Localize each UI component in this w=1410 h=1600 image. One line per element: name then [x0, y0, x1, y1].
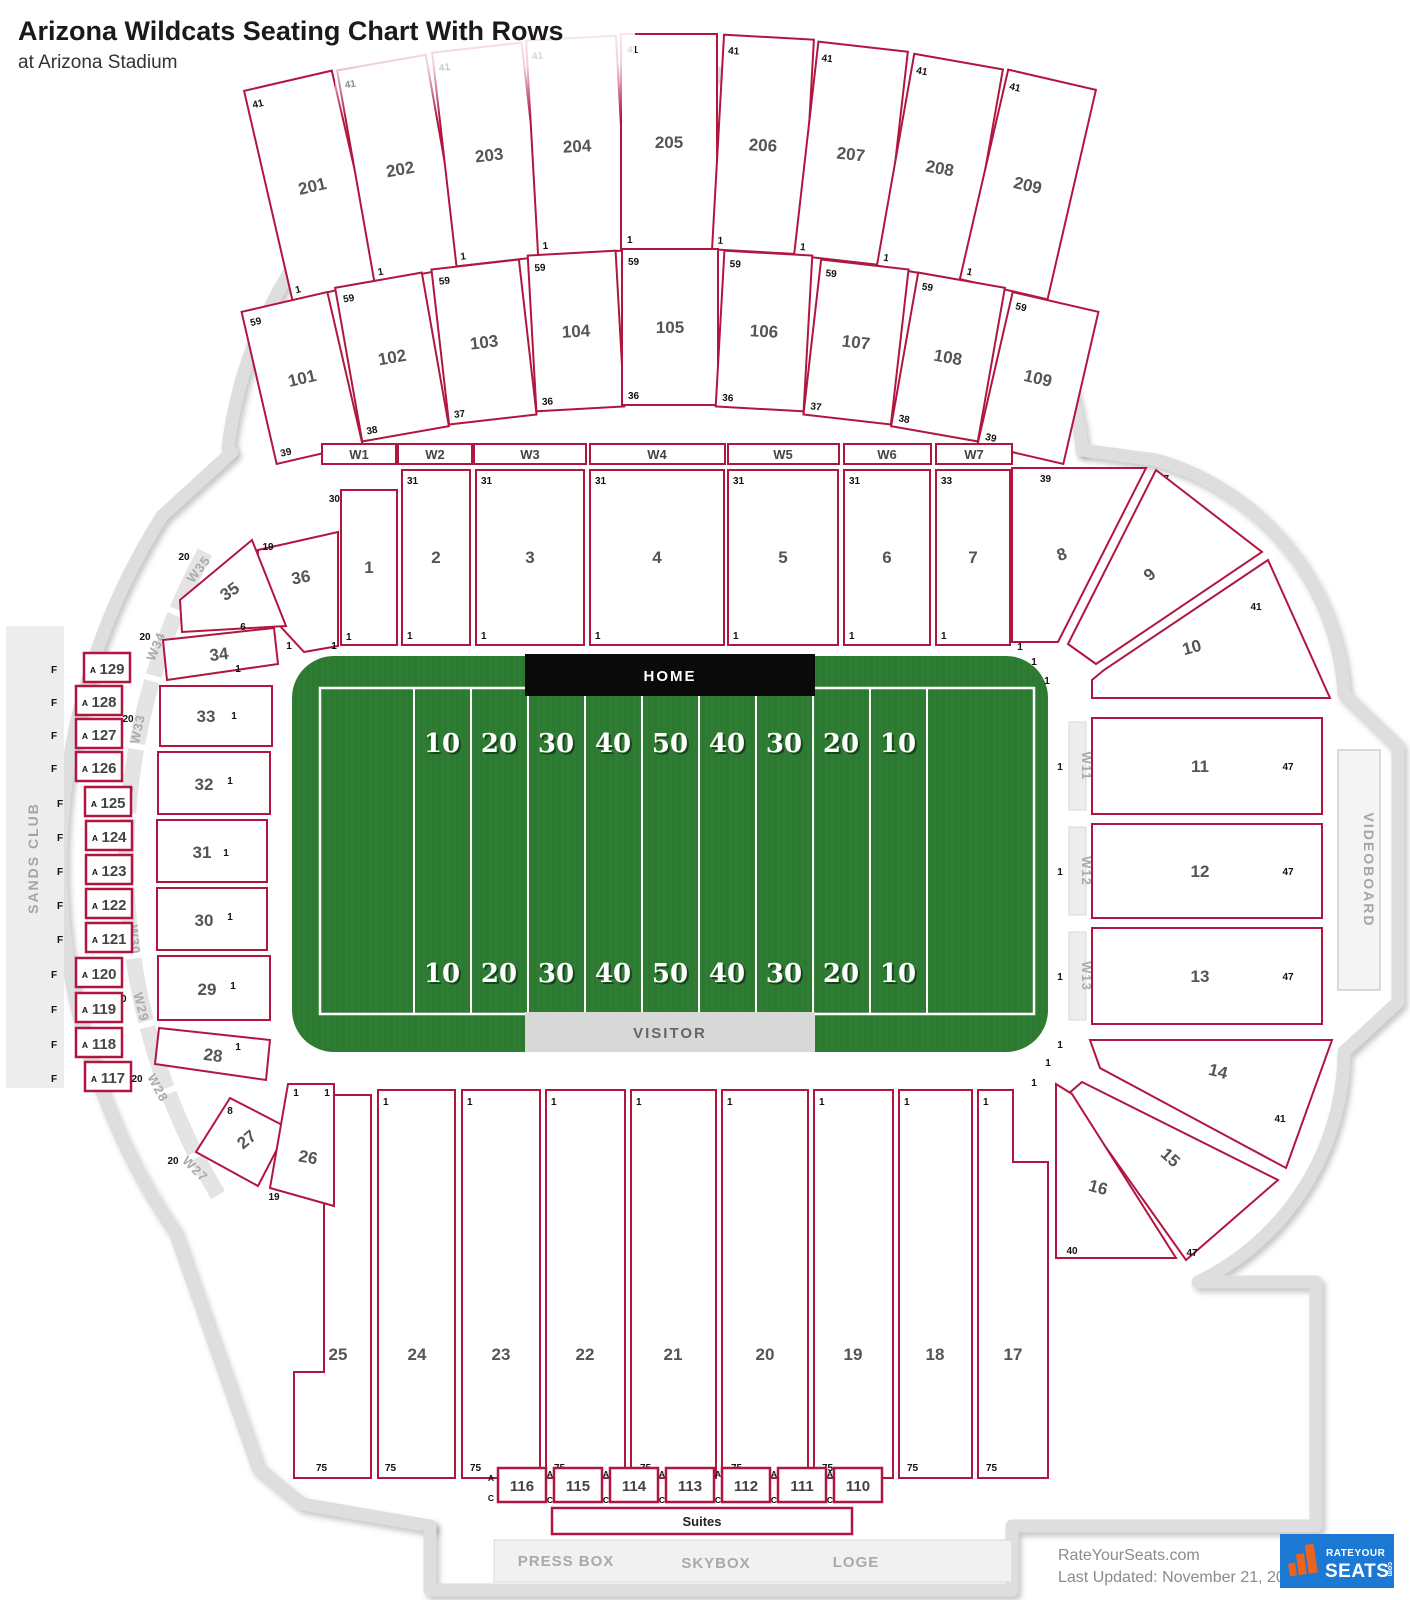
row-marker: 1 — [1031, 1078, 1037, 1089]
row-marker: 36 — [542, 396, 554, 408]
row-marker: 75 — [316, 1463, 328, 1474]
loge-label: LOGE — [833, 1554, 880, 1571]
suite-115[interactable]: 115 — [554, 1468, 602, 1502]
section-11[interactable]: 11 47 — [1092, 718, 1322, 814]
row-marker: F — [57, 901, 63, 912]
footer: RateYourSeats.com Last Updated: November… — [1058, 1534, 1394, 1588]
row-marker: 1 — [1057, 867, 1063, 878]
box-119[interactable]: A119 — [76, 993, 122, 1022]
section-label: 21 — [664, 1345, 683, 1364]
row-marker: 20 — [131, 1074, 143, 1085]
section-1[interactable]: 1 30 1 — [329, 490, 397, 645]
row-marker: 75 — [986, 1463, 998, 1474]
section-label: 12 — [1191, 862, 1210, 881]
box-121[interactable]: A121 — [86, 923, 132, 952]
row-marker: 1 — [231, 711, 237, 722]
box-126[interactable]: A126 — [76, 752, 122, 781]
yard-numbers-bottom: 1020 3040 5040 3020 10 — [424, 959, 916, 989]
row-marker: 1 — [481, 631, 487, 642]
row-marker: F — [51, 764, 57, 775]
page-subtitle: at Arizona Stadium — [18, 52, 177, 73]
row-marker: C — [827, 1495, 833, 1505]
row-marker: 20 — [139, 632, 151, 643]
row-marker: 41 — [728, 46, 740, 58]
row-marker: C — [715, 1495, 721, 1505]
row-marker: 20 — [178, 552, 190, 563]
row-marker: 39 — [1040, 474, 1052, 485]
svg-text:20: 20 — [823, 959, 859, 989]
row-marker: 1 — [331, 641, 337, 652]
row-marker: 1 — [941, 631, 947, 642]
section-30[interactable]: 30 1 — [157, 888, 267, 950]
row-marker: 1 — [383, 1097, 389, 1108]
row-marker: 1 — [235, 664, 241, 675]
box-124[interactable]: A124 — [86, 821, 132, 850]
row-marker: F — [57, 935, 63, 946]
north-sections: 1 30 1 2 31 1 3 31 1 4 31 1 5 31 1 6 31 … — [329, 470, 1010, 645]
page-title: Arizona Wildcats Seating Chart With Rows — [18, 16, 564, 46]
section-33[interactable]: 33 1 — [160, 686, 272, 746]
row-marker: 1 — [733, 631, 739, 642]
row-marker: 41 — [1274, 1114, 1286, 1125]
row-marker: 1 — [717, 236, 724, 247]
row-marker: 19 — [262, 542, 274, 553]
section-label: 7 — [968, 548, 977, 567]
row-marker: A — [659, 1469, 665, 1479]
row-marker: 47 — [1282, 867, 1294, 878]
walkway-w3: W3 — [474, 444, 586, 464]
svg-text:30: 30 — [766, 959, 802, 989]
row-marker: 1 — [1045, 1058, 1051, 1069]
section-label: 20 — [756, 1345, 775, 1364]
football-field: 1020 3040 5040 3020 10 1020 3040 5040 30… — [292, 654, 1048, 1052]
row-marker: 59 — [438, 275, 451, 287]
section-6[interactable]: 6 31 1 — [844, 470, 930, 645]
box-label: 129 — [99, 661, 124, 678]
suite-label: 115 — [566, 1478, 590, 1495]
visitor-label: VISITOR — [633, 1025, 707, 1042]
row-marker: A — [603, 1469, 609, 1479]
box-label: 118 — [92, 1036, 116, 1053]
section-label: 13 — [1191, 967, 1210, 986]
walkway-w1: W1 — [322, 444, 396, 464]
box-127[interactable]: A127 — [76, 719, 122, 748]
section-2[interactable]: 2 31 1 — [402, 470, 470, 645]
svg-text:20: 20 — [823, 729, 859, 759]
section-label: 30 — [195, 911, 214, 930]
south-sections: 25 1 75 24 1 75 23 1 75 22 1 75 21 1 75 … — [294, 1090, 1048, 1478]
section-label: 203 — [474, 144, 504, 166]
walkway-label: W7 — [964, 447, 984, 462]
row-marker: A — [91, 1074, 97, 1084]
box-label: 122 — [101, 897, 126, 914]
row-marker: 1 — [286, 641, 292, 652]
section-label: 34 — [208, 644, 230, 665]
row-marker: C — [659, 1495, 665, 1505]
section-205[interactable]: 205 41 1 — [621, 34, 717, 249]
walkway-w4: W4 — [590, 444, 725, 464]
row-marker: 19 — [268, 1192, 280, 1203]
section-26[interactable] — [270, 1084, 334, 1206]
section-29[interactable]: 29 1 — [158, 956, 270, 1020]
row-marker: 47 — [1282, 762, 1294, 773]
row-marker: 31 — [595, 476, 607, 487]
row-marker: A — [82, 764, 88, 774]
southeast-corner: 14 41 15 47 16 40 1 1 1 — [1031, 1040, 1332, 1260]
row-marker: 1 — [467, 1097, 473, 1108]
svg-text:20: 20 — [481, 959, 517, 989]
row-marker: 75 — [470, 1463, 482, 1474]
stadium-map: 1020 3040 5040 3020 10 1020 3040 5040 30… — [0, 0, 1410, 1600]
section-label: 5 — [778, 548, 787, 567]
row-marker: A — [715, 1469, 721, 1479]
row-marker: 59 — [628, 257, 640, 268]
row-marker: 37 — [453, 409, 466, 421]
field-turf — [292, 656, 1048, 1052]
section-label: 11 — [1191, 757, 1209, 776]
row-marker: F — [51, 970, 57, 981]
section-label: 105 — [656, 318, 684, 337]
north-walkways: W1 W2 W3 W4 W5 W6 W7 — [322, 444, 1012, 464]
section-3[interactable]: 3 31 1 — [476, 470, 584, 645]
row-marker: 33 — [941, 476, 953, 487]
yard-numbers-top: 1020 3040 5040 3020 10 — [424, 729, 916, 759]
box-117[interactable]: A117 — [85, 1062, 131, 1091]
section-12[interactable]: 12 47 — [1092, 824, 1322, 918]
row-marker: 20 — [122, 714, 134, 725]
svg-text:50: 50 — [652, 959, 688, 989]
box-120[interactable]: A120 — [76, 958, 122, 987]
row-marker: 75 — [907, 1463, 919, 1474]
row-marker: 1 — [542, 241, 549, 252]
section-105[interactable]: 105 59 36 — [622, 249, 718, 405]
row-marker: A — [90, 665, 96, 675]
section-label: 104 — [561, 321, 591, 342]
section-label: 206 — [748, 135, 777, 156]
seating-chart-page: 1020 3040 5040 3020 10 1020 3040 5040 30… — [0, 0, 1410, 1600]
box-label: 125 — [100, 795, 125, 812]
level-100: 101 59 39 102 59 38 103 59 37 104 59 36 … — [242, 249, 1099, 464]
row-marker: 1 — [1057, 972, 1063, 983]
svg-text:20: 20 — [481, 729, 517, 759]
section-107[interactable]: 107 59 37 — [803, 260, 908, 425]
west-side: SANDS CLUB W35 20 W34 20 W33 20 W32 20 W… — [6, 532, 338, 1206]
suite-label: 111 — [790, 1478, 813, 1495]
row-marker: 1 — [904, 1097, 910, 1108]
row-marker: C — [771, 1495, 777, 1505]
section-4[interactable]: 4 31 1 — [590, 470, 724, 645]
section-22[interactable]: 22 1 75 — [546, 1090, 625, 1478]
row-marker: 47 — [1282, 972, 1294, 983]
walkway-label: W6 — [877, 447, 897, 462]
section-label: 205 — [655, 133, 683, 152]
row-marker: 1 — [235, 1042, 241, 1053]
row-marker: F — [51, 1074, 57, 1085]
row-marker: A — [82, 970, 88, 980]
row-marker: 1 — [1057, 1040, 1063, 1051]
row-marker: 1 — [551, 1097, 557, 1108]
suite-label: 114 — [622, 1478, 647, 1495]
box-label: 117 — [101, 1070, 125, 1087]
box-label: 121 — [101, 931, 126, 948]
svg-text:10: 10 — [880, 959, 916, 989]
section-32[interactable]: 32 1 — [158, 752, 270, 814]
row-marker: F — [51, 1005, 57, 1016]
section-104[interactable]: 104 59 36 — [528, 251, 625, 412]
row-marker: 1 — [293, 1088, 299, 1099]
svg-text:40: 40 — [595, 729, 631, 759]
row-marker: 1 — [819, 1097, 825, 1108]
walkway-label: W2 — [425, 447, 445, 462]
box-label: 124 — [101, 829, 127, 846]
rateyourseats-logo[interactable]: RATEYOUR SEATS com — [1280, 1534, 1394, 1588]
section-label: 3 — [525, 548, 534, 567]
row-marker: 1 — [983, 1097, 989, 1108]
section-label: 24 — [408, 1345, 427, 1364]
row-marker: 1 — [227, 776, 233, 787]
section-label: 22 — [576, 1345, 595, 1364]
row-marker: C — [547, 1495, 553, 1505]
section-label: 207 — [836, 143, 866, 165]
row-marker: 1 — [230, 981, 236, 992]
section-label: 19 — [844, 1345, 863, 1364]
row-marker: A — [92, 935, 98, 945]
walkway-label: W29 — [130, 991, 152, 1023]
section-label: 28 — [203, 1045, 224, 1066]
box-label: 126 — [91, 760, 116, 777]
row-marker: 59 — [729, 259, 741, 271]
row-marker: A — [82, 1005, 88, 1015]
row-marker: 1 — [1017, 642, 1023, 653]
section-19[interactable]: 19 1 75 — [814, 1090, 893, 1478]
box-label: 127 — [91, 727, 116, 744]
box-122[interactable]: A122 — [86, 889, 132, 918]
sands-club-label: SANDS CLUB — [25, 802, 41, 914]
row-marker: 1 — [227, 912, 233, 923]
row-marker: A — [91, 799, 97, 809]
svg-text:50: 50 — [652, 729, 688, 759]
section-label: 25 — [329, 1345, 348, 1364]
footer-updated: Last Updated: November 21, 2025 — [1058, 1569, 1303, 1586]
section-7[interactable]: 7 33 1 — [936, 470, 1010, 645]
row-marker: 31 — [407, 476, 419, 487]
row-marker: 36 — [628, 391, 640, 402]
section-label: 107 — [841, 331, 871, 353]
row-marker: F — [51, 698, 57, 709]
section-label: 32 — [195, 775, 214, 794]
suite-label: 116 — [510, 1478, 534, 1495]
svg-text:40: 40 — [709, 959, 745, 989]
svg-text:30: 30 — [766, 729, 802, 759]
row-marker: 1 — [627, 235, 633, 246]
box-label: 119 — [92, 1001, 116, 1018]
box-125[interactable]: A125 — [85, 787, 131, 816]
row-marker: 1 — [1057, 762, 1063, 773]
row-marker: A — [82, 731, 88, 741]
row-marker: F — [57, 799, 63, 810]
suite-111[interactable]: 111 — [778, 1468, 826, 1502]
row-marker: 30 — [329, 494, 341, 505]
box-118[interactable]: A118 — [76, 1028, 122, 1057]
row-marker: 1 — [407, 631, 413, 642]
row-marker: 41 — [1250, 602, 1262, 613]
walkway-w5: W5 — [728, 444, 839, 464]
suite-113[interactable]: 113 — [666, 1468, 714, 1502]
box-123[interactable]: A123 — [86, 855, 132, 884]
svg-text:10: 10 — [424, 729, 460, 759]
section-label: 4 — [652, 548, 662, 567]
section-21[interactable]: 21 1 75 — [631, 1090, 716, 1478]
suite-110[interactable]: 110 — [834, 1468, 882, 1502]
box-label: 120 — [91, 966, 116, 983]
row-marker: A — [92, 867, 98, 877]
section-label: 26 — [297, 1147, 319, 1169]
row-marker: F — [51, 665, 57, 676]
row-marker: A — [92, 901, 98, 911]
box-129[interactable]: A129 — [84, 653, 130, 682]
row-marker: 20 — [167, 1156, 179, 1167]
section-label: 6 — [882, 548, 891, 567]
row-marker: C — [488, 1493, 494, 1503]
row-marker: F — [57, 867, 63, 878]
row-marker: A — [547, 1469, 553, 1479]
section-label: 1 — [364, 558, 373, 577]
section-label: 33 — [197, 707, 216, 726]
section-23[interactable]: 23 1 75 — [462, 1090, 540, 1478]
row-marker: A — [82, 698, 88, 708]
section-label: 204 — [562, 136, 592, 157]
row-marker: 1 — [727, 1097, 733, 1108]
row-marker: 8 — [227, 1106, 233, 1117]
row-marker: 1 — [595, 631, 601, 642]
section-106[interactable]: 106 59 36 — [716, 251, 813, 412]
suite-label: 112 — [734, 1478, 758, 1495]
row-marker: A — [92, 833, 98, 843]
row-marker: 31 — [733, 476, 745, 487]
row-marker: A — [827, 1469, 833, 1479]
walkway-label: W4 — [647, 447, 667, 462]
row-marker: F — [57, 833, 63, 844]
row-marker: 47 — [1186, 1248, 1198, 1259]
east-side: W11 W12 W13 1 1 1 11 47 12 47 13 47 VIDE… — [1057, 718, 1380, 1024]
row-marker: 1 — [346, 632, 352, 643]
row-marker: 1 — [324, 1088, 330, 1099]
suite-label: 113 — [678, 1478, 702, 1495]
box-label: 123 — [101, 863, 126, 880]
walkway-w6: W6 — [844, 444, 931, 464]
row-marker: 1 — [849, 631, 855, 642]
walkway-label: W1 — [349, 447, 369, 462]
footer-site: RateYourSeats.com — [1058, 1547, 1200, 1564]
section-label: 103 — [469, 331, 499, 353]
press-box-label: PRESS BOX — [518, 1553, 615, 1570]
suites-row: A C 116 A C 115 A C 114 A C 113 A C 112 … — [488, 1468, 1012, 1582]
section-13[interactable]: 13 47 — [1092, 928, 1322, 1024]
svg-text:30: 30 — [538, 959, 574, 989]
row-marker: 36 — [722, 393, 734, 405]
walkway-w2: W2 — [398, 444, 472, 464]
svg-text:40: 40 — [595, 959, 631, 989]
suite-112[interactable]: 112 — [722, 1468, 770, 1502]
section-5[interactable]: 5 31 1 — [728, 470, 838, 645]
section-24[interactable]: 24 1 75 — [378, 1090, 455, 1478]
walkway-label: W3 — [520, 447, 540, 462]
row-marker: F — [51, 1040, 57, 1051]
section-label: 31 — [193, 843, 212, 862]
row-marker: F — [51, 731, 57, 742]
suites-label: Suites — [682, 1514, 721, 1529]
row-marker: 1 — [636, 1097, 642, 1108]
row-marker: A — [488, 1473, 494, 1483]
svg-text:30: 30 — [538, 729, 574, 759]
row-marker: A — [82, 1040, 88, 1050]
row-marker: 59 — [825, 268, 838, 280]
logo-text-top: RATEYOUR — [1326, 1548, 1386, 1559]
row-marker: 1 — [1031, 657, 1037, 668]
section-label: 2 — [431, 548, 440, 567]
logo-text-main: SEATS — [1325, 1561, 1389, 1582]
logo-text-com: com — [1386, 1562, 1393, 1576]
row-marker: 37 — [810, 401, 823, 413]
row-marker: 75 — [385, 1463, 397, 1474]
section-label: 29 — [198, 980, 217, 999]
section-31[interactable]: 31 1 — [157, 820, 267, 882]
row-marker: 1 — [1044, 676, 1050, 687]
suite-116[interactable]: 116 — [498, 1468, 546, 1502]
section-label: 18 — [926, 1345, 945, 1364]
section-20[interactable]: 20 1 75 — [722, 1090, 808, 1478]
row-marker: A — [771, 1469, 777, 1479]
box-label: 128 — [91, 694, 116, 711]
row-marker: 40 — [1066, 1246, 1078, 1257]
northeast-corner: 8 39 47 9 10 41 1 1 1 — [1012, 468, 1330, 698]
box-128[interactable]: A128 — [76, 686, 122, 715]
row-marker: 59 — [534, 263, 546, 275]
row-marker: C — [603, 1495, 609, 1505]
row-marker: 31 — [481, 476, 493, 487]
suite-114[interactable]: 114 — [610, 1468, 658, 1502]
svg-text:10: 10 — [424, 959, 460, 989]
home-label: HOME — [644, 668, 697, 685]
row-marker: 31 — [849, 476, 861, 487]
svg-text:40: 40 — [709, 729, 745, 759]
section-label: 17 — [1004, 1345, 1023, 1364]
section-17[interactable]: 17 1 75 — [978, 1090, 1048, 1478]
videoboard-label: VIDEOBOARD — [1361, 813, 1377, 928]
section-label: 23 — [492, 1345, 511, 1364]
row-marker: 41 — [821, 53, 834, 65]
skybox-label: SKYBOX — [681, 1555, 750, 1572]
section-label: 106 — [749, 321, 778, 342]
walkway-w7: W7 — [936, 444, 1012, 464]
suite-label: 110 — [846, 1478, 870, 1495]
section-103[interactable]: 103 59 37 — [431, 260, 536, 425]
svg-text:10: 10 — [880, 729, 916, 759]
section-label: 36 — [290, 567, 312, 589]
section-18[interactable]: 18 1 75 — [899, 1090, 972, 1478]
walkway-label: W5 — [773, 447, 793, 462]
row-marker: 1 — [223, 848, 229, 859]
